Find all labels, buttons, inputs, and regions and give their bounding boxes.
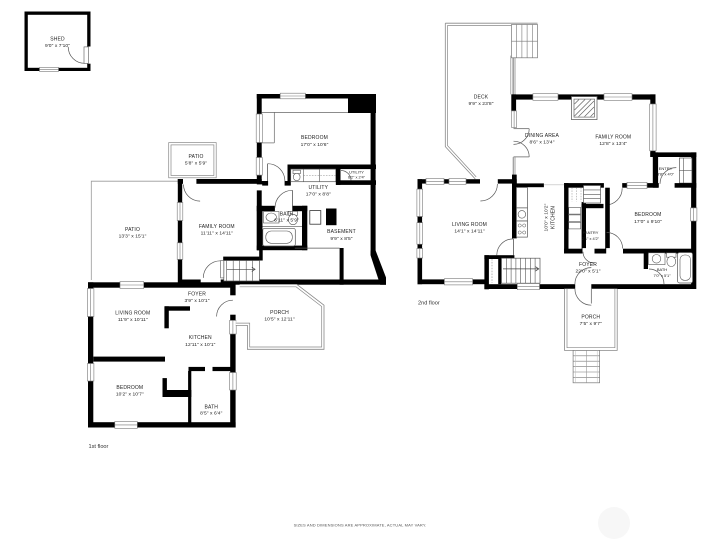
- svg-text:PORCH: PORCH: [581, 315, 600, 321]
- svg-text:11'9" x 10'11": 11'9" x 10'11": [118, 317, 148, 323]
- svg-text:7'0" x 5'1": 7'0" x 5'1": [653, 273, 671, 278]
- svg-text:PANTRY: PANTRY: [583, 230, 599, 235]
- svg-text:17'0" x 10'6": 17'0" x 10'6": [301, 142, 329, 148]
- svg-text:BATH: BATH: [280, 211, 294, 217]
- svg-text:17'0" x 8'8": 17'0" x 8'8": [306, 192, 331, 198]
- svg-text:LIVING ROOM: LIVING ROOM: [452, 222, 487, 228]
- svg-text:12'11" x 10'1": 12'11" x 10'1": [185, 342, 215, 348]
- svg-text:8'6" x 13'4": 8'6" x 13'4": [529, 139, 554, 145]
- svg-text:FOYER: FOYER: [579, 262, 597, 268]
- svg-text:KITCHEN: KITCHEN: [551, 206, 557, 229]
- svg-text:12'8" x 13'4": 12'8" x 13'4": [599, 141, 627, 147]
- svg-text:FOYER: FOYER: [188, 292, 206, 298]
- svg-text:FAMILY ROOM: FAMILY ROOM: [199, 224, 235, 230]
- svg-text:BEDROOM: BEDROOM: [116, 385, 143, 391]
- svg-text:PATIO: PATIO: [188, 154, 203, 160]
- svg-text:17'0" x 9'10": 17'0" x 9'10": [634, 219, 662, 225]
- svg-text:22'0" x 5'1": 22'0" x 5'1": [575, 268, 600, 274]
- svg-text:9'0" x 7'10": 9'0" x 7'10": [45, 43, 70, 49]
- svg-text:9'9" x 23'8": 9'9" x 23'8": [468, 101, 493, 107]
- svg-text:10'0" x 10'2": 10'0" x 10'2": [544, 203, 550, 231]
- svg-text:BATH: BATH: [657, 267, 667, 272]
- svg-text:FAMILY ROOM: FAMILY ROOM: [595, 134, 631, 140]
- svg-text:3'8" x 4'0": 3'8" x 4'0": [657, 171, 675, 176]
- svg-text:10'2" x 10'7": 10'2" x 10'7": [116, 391, 144, 397]
- svg-text:DINING AREA: DINING AREA: [525, 133, 559, 139]
- svg-text:6'11" x 5'9": 6'11" x 5'9": [274, 218, 299, 224]
- svg-text:11'11" x 14'11": 11'11" x 14'11": [201, 231, 234, 237]
- svg-text:SIZES AND DIMENSIONS ARE APPRO: SIZES AND DIMENSIONS ARE APPROXIMATE, AC…: [294, 522, 427, 527]
- svg-text:9'9" x 8'5": 9'9" x 8'5": [330, 236, 352, 242]
- svg-text:6'2" x 2'4": 6'2" x 2'4": [348, 175, 366, 180]
- svg-text:14'1" x 14'11": 14'1" x 14'11": [454, 228, 484, 234]
- svg-text:PATIO: PATIO: [125, 227, 140, 233]
- svg-text:LIVING ROOM: LIVING ROOM: [115, 311, 150, 317]
- svg-text:10'5" x 12'11": 10'5" x 12'11": [264, 316, 294, 322]
- svg-text:5'8" x 5'9": 5'8" x 5'9": [185, 160, 207, 166]
- svg-text:BEDROOM: BEDROOM: [301, 135, 328, 141]
- svg-text:2nd floor: 2nd floor: [418, 301, 440, 307]
- svg-text:SHED: SHED: [50, 36, 65, 42]
- svg-text:3'9" x 10'1": 3'9" x 10'1": [184, 298, 209, 304]
- svg-text:UTILITY: UTILITY: [308, 185, 328, 191]
- svg-text:2'1" x 4'2": 2'1" x 4'2": [582, 236, 600, 241]
- svg-text:13'3" x 15'1": 13'3" x 15'1": [119, 233, 147, 239]
- svg-text:PORCH: PORCH: [270, 310, 289, 316]
- svg-text:BASEMENT: BASEMENT: [327, 229, 356, 235]
- svg-text:7'5" x 9'7": 7'5" x 9'7": [580, 321, 602, 327]
- svg-text:BATH: BATH: [205, 404, 219, 410]
- svg-text:DECK: DECK: [474, 95, 489, 101]
- svg-text:KITCHEN: KITCHEN: [189, 335, 212, 341]
- svg-text:1st floor: 1st floor: [89, 444, 109, 450]
- svg-text:BEDROOM: BEDROOM: [635, 212, 662, 218]
- svg-text:8'5" x 6'4": 8'5" x 6'4": [200, 411, 222, 417]
